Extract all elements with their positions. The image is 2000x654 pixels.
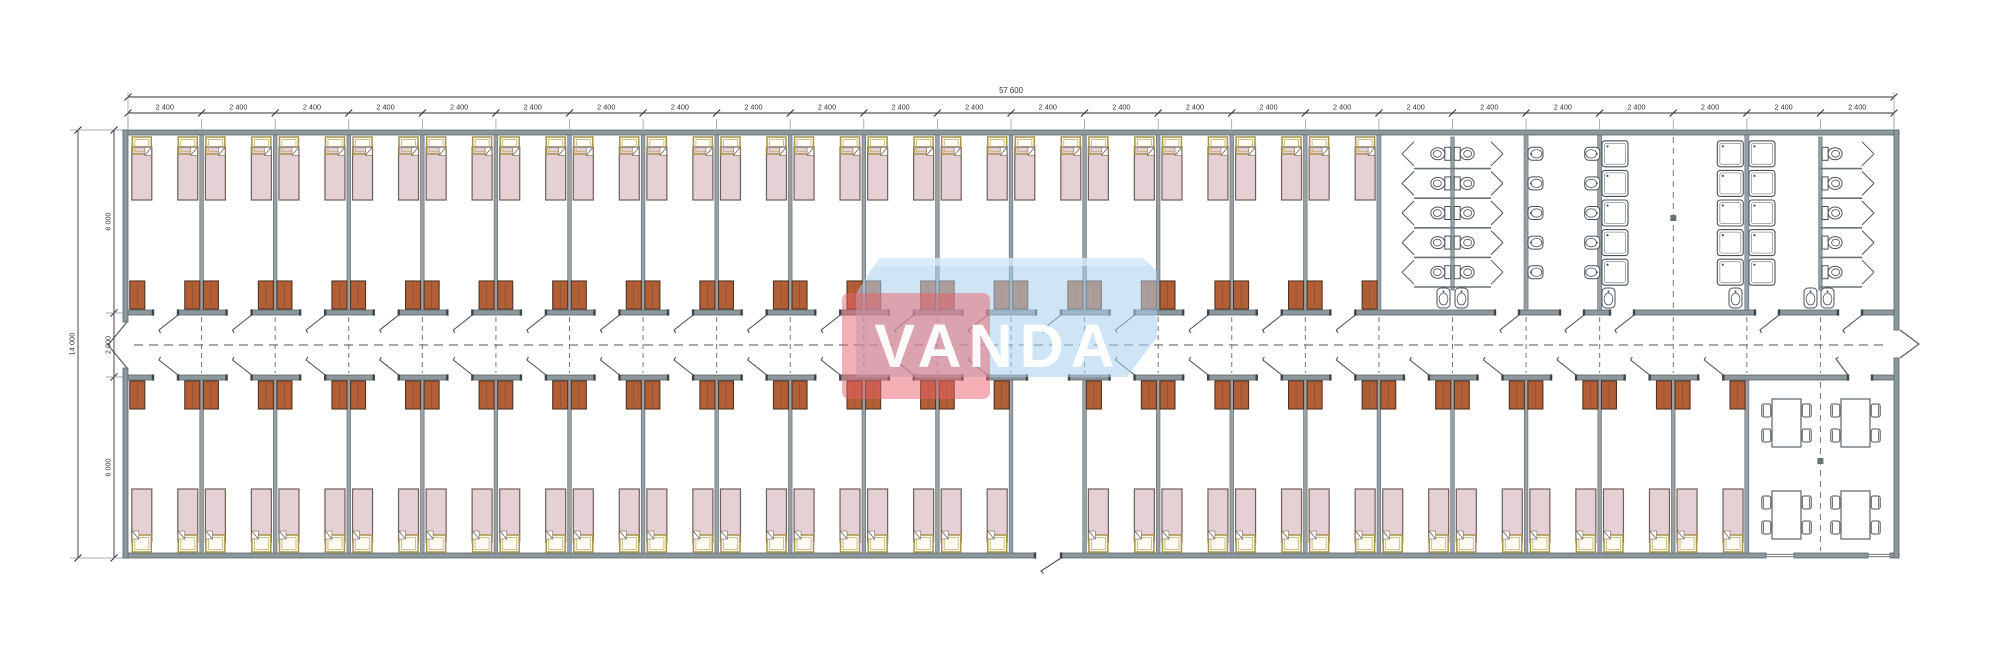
bed [941,489,961,552]
sink-icon [1585,177,1600,190]
door-leaf [1615,315,1634,333]
svg-text:2 400: 2 400 [1186,103,1204,112]
chair [1762,404,1771,417]
dining-table [1831,399,1880,447]
chair [1802,429,1811,442]
bed [399,137,419,200]
sink-icon [1585,147,1600,160]
svg-text:2 400: 2 400 [1554,103,1572,112]
bed [1576,489,1596,552]
wc-stall [1822,142,1874,166]
door-leaf [1484,357,1503,375]
chair [1762,429,1771,442]
chair [1831,521,1840,534]
wardrobe-cabinet [1362,281,1377,309]
bed [1088,489,1108,552]
bed [720,489,740,552]
svg-text:2 400: 2 400 [156,103,174,112]
door-leaf [527,315,546,333]
wardrobe-cabinet [700,381,715,409]
sink-icon [1821,288,1834,308]
wardrobe-cabinet [332,281,347,309]
door-leaf [1336,357,1355,375]
watermark-text: VANDA [874,312,1121,380]
sink-icon [1455,288,1468,308]
bed [426,137,446,200]
dining-table [1831,491,1880,539]
wc-stall [1822,231,1874,255]
chair [1762,496,1771,509]
bed [868,489,888,552]
sink-icon [1585,207,1600,220]
wardrobe-cabinet [203,381,218,409]
bedroom [426,137,492,200]
wardrobe-cabinet [1730,381,1745,409]
svg-text:6 000: 6 000 [104,458,113,476]
wardrobe-cabinet [1601,381,1616,409]
wardrobe-cabinet [1160,281,1175,309]
svg-text:2 400: 2 400 [450,103,468,112]
svg-text:57 600: 57 600 [999,86,1024,95]
bedroom [1088,137,1154,200]
bedroom [1603,489,1669,552]
bed [941,137,961,200]
wc-stall [1402,201,1451,225]
shower-stall [1602,170,1628,196]
bed [500,137,520,200]
door-leaf [1336,315,1355,333]
wardrobe-cabinet [1215,381,1230,409]
bed [1723,489,1743,552]
svg-text:2 400: 2 400 [1701,103,1719,112]
bed [619,137,639,200]
wardrobe-cabinet [1215,281,1230,309]
wardrobe-cabinet [718,281,733,309]
svg-text:2 400: 2 400 [1848,103,1866,112]
wardrobe-cabinet [332,381,347,409]
bed [987,137,1007,200]
bed [573,137,593,200]
wardrobe-cabinet [1141,381,1156,409]
bedroom [1088,489,1154,552]
wc-stall [1402,260,1451,284]
door-leaf [1189,315,1208,333]
svg-text:2 400: 2 400 [1407,103,1425,112]
chair [1802,496,1811,509]
wardrobe-cabinet [1289,381,1304,409]
bedroom [426,489,492,552]
chair [1871,521,1880,534]
bedroom [794,489,860,552]
wardrobe-cabinet [553,281,568,309]
svg-text:2 400: 2 400 [1112,103,1130,112]
wardrobe-cabinet [424,281,439,309]
chair [1871,496,1880,509]
svg-text:14 000: 14 000 [68,333,77,356]
bed [132,137,152,200]
wardrobe-cabinet [1234,381,1249,409]
wc-stall [1454,201,1503,225]
wardrobe-cabinet [1656,381,1671,409]
door-leaf [1189,357,1208,375]
bed [1355,137,1375,200]
bedroom [941,137,1007,200]
wardrobe-cabinet [1583,381,1598,409]
bedroom [647,137,713,200]
door-leaf [601,357,620,375]
bed [279,137,299,200]
wardrobe-cabinet [645,381,660,409]
bedroom [941,489,1007,552]
bed [1236,489,1256,552]
bedroom [573,489,639,552]
bedroom [868,137,934,200]
wardrobe-cabinet [498,381,513,409]
svg-text:2 400: 2 400 [376,103,394,112]
bedroom [1383,489,1449,552]
bed [1061,137,1081,200]
sink-icon [1729,288,1742,308]
wardrobe-cabinet [1160,381,1175,409]
door-leaf [1631,357,1650,375]
sink-icon [1528,266,1543,279]
bedroom [794,137,860,200]
shower-stall [1602,259,1628,285]
bedroom [647,489,713,552]
svg-text:2 400: 2 400 [1480,103,1498,112]
door-leaf [1565,315,1584,333]
wardrobe-cabinet [1234,281,1249,309]
bed [1383,489,1403,552]
shower-stall [1717,170,1743,196]
wardrobe-cabinet [994,381,1009,409]
shower-stall [1749,259,1775,285]
sink-icon [1804,288,1817,308]
door-leaf [821,315,840,333]
bed [840,489,860,552]
wardrobe-cabinet [406,281,421,309]
wardrobe-cabinet [773,381,788,409]
bed [546,137,566,200]
bed [251,137,271,200]
bed [1015,137,1035,200]
chair [1802,404,1811,417]
bed [500,489,520,552]
wardrobe-cabinet [130,381,145,409]
door-leaf [1263,357,1282,375]
wardrobe-cabinet [1528,381,1543,409]
wardrobe-cabinet [258,381,273,409]
wardrobe-cabinet [1307,281,1322,309]
wc-stall [1822,201,1874,225]
svg-text:2 400: 2 400 [1259,103,1277,112]
bed [647,489,667,552]
wardrobe-cabinet [277,381,292,409]
door-leaf [159,357,178,375]
wardrobe-cabinet [351,281,366,309]
bed [279,489,299,552]
sink-icon [1528,207,1543,220]
bedroom [279,137,345,200]
wardrobe-cabinet [479,381,494,409]
door-leaf [1843,315,1862,333]
wc-stall [1454,142,1503,166]
door-leaf [233,357,252,375]
door-leaf [748,315,767,333]
door-leaf [1410,357,1429,375]
shower-stall [1749,170,1775,196]
wc-stall [1402,171,1451,195]
svg-text:6 000: 6 000 [104,212,113,230]
bedroom [1162,489,1228,552]
door-leaf [233,315,252,333]
door-leaf [380,357,399,375]
door-leaf [527,357,546,375]
door-leaf [380,315,399,333]
bed [914,489,934,552]
bedroom [720,137,786,200]
wardrobe-cabinet [1362,381,1377,409]
bed [132,489,152,552]
wardrobe-cabinet [498,281,513,309]
door-leaf [453,315,472,333]
bed [1162,489,1182,552]
wardrobe-cabinet [626,381,641,409]
dining-table [1762,399,1811,447]
bed [1282,137,1302,200]
wardrobe-cabinet [700,281,715,309]
bed [1603,489,1623,552]
wardrobe-cabinet [130,281,145,309]
bed [840,137,860,200]
bedroom [1015,137,1081,200]
bed [353,137,373,200]
bed [546,489,566,552]
bed [693,489,713,552]
bed [1677,489,1697,552]
shower-stall [1602,200,1628,226]
bed [399,489,419,552]
door-leaf [674,315,693,333]
wardrobe-cabinet [1086,381,1101,409]
bed [325,137,345,200]
sink-icon [1528,147,1543,160]
bed [178,137,198,200]
svg-text:2 400: 2 400 [303,103,321,112]
bedroom [1162,137,1228,200]
bedroom [720,489,786,552]
bed [914,137,934,200]
bedroom [500,489,566,552]
wardrobe-cabinet [406,381,421,409]
bedroom [205,489,271,552]
door-leaf [159,315,178,333]
bedroom [573,137,639,200]
bed [1208,137,1228,200]
sink-icon [1437,288,1450,308]
bed [1355,489,1375,552]
bed [693,137,713,200]
door-leaf [306,315,325,333]
sink-icon [1602,288,1615,308]
svg-text:2 400: 2 400 [1039,103,1057,112]
wc-stall [1402,142,1451,166]
door-leaf [1557,357,1576,375]
wardrobe-cabinet [553,381,568,409]
sink-icon [1528,236,1543,249]
svg-text:2 400: 2 400 [1333,103,1351,112]
sink-icon [1585,236,1600,249]
chair [1802,521,1811,534]
vanda-watermark: VANDA [842,258,1157,399]
door-leaf [1500,315,1519,333]
bedroom [1456,489,1522,552]
bed [1282,489,1302,552]
chair [1831,404,1840,417]
svg-text:2 400: 2 400 [965,103,983,112]
bed [205,489,225,552]
svg-text:2 400: 2 400 [891,103,909,112]
bed [987,489,1007,552]
bedroom [1309,137,1375,200]
bedroom [353,137,419,200]
wardrobe-cabinet [1436,381,1451,409]
door-leaf [1263,315,1282,333]
bed [472,137,492,200]
bed [766,137,786,200]
wardrobe-cabinet [479,281,494,309]
shower-stall [1717,230,1743,256]
bed [353,489,373,552]
bedroom [1530,489,1596,552]
bedroom [500,137,566,200]
bedroom [1236,489,1302,552]
wardrobe-cabinet [185,381,200,409]
door-leaf [1760,315,1779,333]
chair [1831,429,1840,442]
bed [868,137,888,200]
bed [1134,489,1154,552]
bed [205,137,225,200]
bedroom [279,489,345,552]
bed [1088,137,1108,200]
bed [1530,489,1550,552]
wardrobe-cabinet [1454,381,1469,409]
bed [647,137,667,200]
bed [178,489,198,552]
chair [1871,404,1880,417]
chair [1831,496,1840,509]
chair [1762,521,1771,534]
svg-text:2 400: 2 400 [597,103,615,112]
wc-stall [1454,260,1503,284]
sink-icon [1528,177,1543,190]
door-leaf [821,357,840,375]
wardrobe-cabinet [351,381,366,409]
bed [1236,137,1256,200]
wc-stall [1822,260,1874,284]
bedroom [353,489,419,552]
shower-stall [1749,200,1775,226]
svg-text:2 400: 2 400 [818,103,836,112]
bed [794,489,814,552]
door-leaf [748,357,767,375]
wc-stall [1822,171,1874,195]
shower-stall [1602,141,1628,167]
svg-text:2 400: 2 400 [524,103,542,112]
door-leaf [674,357,693,375]
corridor-exit-right [1900,330,1919,358]
bedroom [205,137,271,200]
svg-text:2 400: 2 400 [1627,103,1645,112]
bed [1456,489,1476,552]
wc-stall [1454,171,1503,195]
bed [1134,137,1154,200]
bed [251,489,271,552]
wardrobe-cabinet [203,281,218,309]
bed [1429,489,1449,552]
wardrobe-cabinet [792,281,807,309]
bedroom [1309,489,1375,552]
shower-stall [1717,200,1743,226]
bed [1309,489,1329,552]
bed [1208,489,1228,552]
bed [1162,137,1182,200]
bed [766,489,786,552]
shower-stall [1602,230,1628,256]
wardrobe-cabinet [1509,381,1524,409]
svg-text:2 400: 2 400 [1774,103,1792,112]
svg-text:2 400: 2 400 [229,103,247,112]
wardrobe-cabinet [277,281,292,309]
wardrobe-cabinet [424,381,439,409]
wardrobe-cabinet [1675,381,1690,409]
floor-plan: 2 4002 4002 4002 4002 4002 4002 4002 400… [0,0,2000,654]
bed [619,489,639,552]
shower-stall [1717,141,1743,167]
shower-stall [1749,141,1775,167]
wardrobe-cabinet [258,281,273,309]
wardrobe-cabinet [626,281,641,309]
bedroom [132,489,198,552]
wc-stall [1454,231,1503,255]
wc-stall [1402,231,1451,255]
wardrobe-cabinet [1381,381,1396,409]
chair [1871,429,1880,442]
svg-text:2 400: 2 400 [671,103,689,112]
shower-stall [1717,259,1743,285]
bedroom [868,489,934,552]
bed [426,489,446,552]
bed [1502,489,1522,552]
door-leaf [1704,357,1723,375]
wardrobe-cabinet [792,381,807,409]
bed [325,489,345,552]
wardrobe-cabinet [773,281,788,309]
bed [794,137,814,200]
door-leaf [306,357,325,375]
sanitary-area [1402,137,1874,308]
bed [720,137,740,200]
dining-table [1762,491,1811,539]
wardrobe-cabinet [1307,381,1322,409]
wardrobe-cabinet [571,281,586,309]
bedroom [132,137,198,200]
shower-stall [1749,230,1775,256]
bedroom [1677,489,1743,552]
bed [1649,489,1669,552]
bed [1309,137,1329,200]
